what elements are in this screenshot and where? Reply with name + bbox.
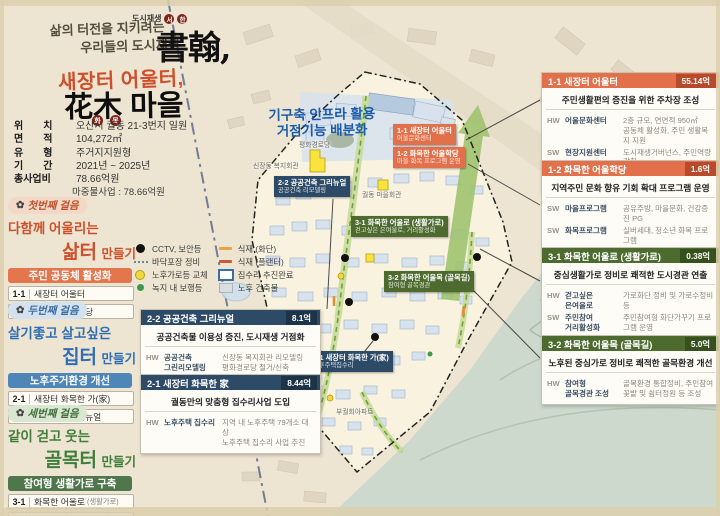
paving-dots-icon bbox=[134, 261, 136, 263]
torn-edge-left bbox=[0, 0, 4, 516]
step2-title-word: 집터 bbox=[62, 347, 97, 368]
map-tag-3-2: 3-2 화목한 어울목 (골목길) 참여형 골목경관 bbox=[384, 271, 474, 292]
legend-repair-done: 집수리 추진완료 bbox=[218, 268, 294, 281]
step3-badge-label: 세번째 걸음 bbox=[27, 406, 78, 421]
flower-icon: ✿ bbox=[16, 305, 24, 316]
step2-badge: ✿ 두번째 걸음 bbox=[8, 302, 87, 319]
detail-box-3-2: 3-2 화목한 어울목 (골목길) 5.0억 노후된 중심가로 정비로 쾌적한 … bbox=[541, 335, 720, 405]
legend-streetlamp: 노후가로등 교체 bbox=[132, 268, 208, 281]
detail-row: SW 화목프로그램 실버세대, 청소년 화목 프로그램 bbox=[547, 226, 714, 246]
info-row-type: 유 형 주거지지원형 bbox=[14, 148, 187, 160]
detail-box-title: 1-2 화목한 어울학당 bbox=[548, 162, 626, 176]
torn-edge-top bbox=[0, 0, 720, 6]
poster-title-line2: 花木 마을 bbox=[64, 82, 184, 126]
map-tag-2-1: 2-1 새장터 화목한 가(家) 노후주택집수리 bbox=[309, 351, 393, 372]
info-row-location: 위 치 오산시 궐동 21-3번지 일원 bbox=[14, 121, 187, 133]
poster: 삶의 터전을 지키려는 우리들의 도시재생 도시재생 서 한 書翰, 새장터 어… bbox=[0, 0, 720, 516]
detail-row: HW 걷고싶은 은여울로 가로화단 정비 및 가로수정비 등 bbox=[547, 291, 714, 311]
detail-box-title: 2-1 새장터 화목한 家 bbox=[147, 376, 229, 390]
step2-title-suffix: 만들기 bbox=[101, 352, 136, 366]
step2-badge-label: 두번째 걸음 bbox=[27, 303, 78, 318]
detail-row: HW 참여형 골목경관 조성 골목환경 통합정비, 주민참여 꽃밭 및 쉼터정원… bbox=[547, 379, 714, 399]
walklight-dot-icon bbox=[137, 284, 144, 291]
detail-box-title: 3-1 화목한 어울로 (생활가로) bbox=[548, 249, 661, 263]
legend-paving: 바닥포장 정비 bbox=[132, 255, 208, 268]
legend-old-building: 노후 건축물 bbox=[218, 281, 294, 294]
step1-title-line1: 다함께 어울리는 bbox=[8, 217, 136, 237]
detail-box-1-2: 1-2 화목한 어울학당 1.6억 지역주민 문화 향유 기회 확대 프로그램 … bbox=[541, 160, 720, 251]
project-info: 위 치 오산시 궐동 21-3번지 일원 면 적 104,272㎡ 유 형 주거… bbox=[14, 121, 187, 199]
landmark-sinjang-welfare-center: 신장동 복지회관 bbox=[253, 160, 299, 170]
planting-planter-line-icon bbox=[219, 260, 232, 263]
landmark-peace-senior-center: 평화경로당 bbox=[299, 139, 330, 149]
step1-badge: ✿ 첫번째 걸음 bbox=[8, 197, 87, 214]
step3-title-suffix: 만들기 bbox=[101, 455, 136, 469]
detail-row: SW 마을프로그램 공유주방, 마을문화, 건강증진 PG bbox=[547, 204, 714, 224]
detail-box-subtitle: 공공건축물 이용성 증진, 도시재생 거점화 bbox=[145, 328, 316, 347]
detail-box-title: 3-2 화목한 어울목 (골목길) bbox=[548, 337, 652, 351]
step2-title-line1: 살기좋고 살고싶은 bbox=[8, 322, 136, 342]
map-tag-1-1: 1-1 새장터 어울터 어울문화센터 bbox=[393, 124, 456, 145]
legend-planting-planter: 식재 (플랜터) bbox=[218, 255, 294, 268]
step1-title: 다함께 어울리는 삶터 만들기 bbox=[8, 217, 136, 264]
budget-badge: 8.1억 bbox=[286, 311, 317, 325]
torn-edge-right bbox=[716, 0, 720, 516]
torn-edge-bottom bbox=[0, 507, 720, 516]
step3-badge: ✿ 세번째 걸음 bbox=[8, 405, 87, 422]
step3-title-word: 골목터 bbox=[45, 450, 97, 471]
detail-box-3-1: 3-1 화목한 어울로 (생활가로) 0.38억 중심생활가로 정비로 쾌적한 … bbox=[541, 247, 720, 338]
detail-row: HW 공공건축 그린리모델링 신장동 복지회관 리모델링 평화경로당 철거/신축 bbox=[146, 353, 315, 373]
old-building-rect-icon bbox=[219, 283, 233, 293]
detail-box-subtitle: 지역주민 문화 향유 기회 확대 프로그램 운영 bbox=[546, 179, 715, 198]
landmark-gwoldong-village-hall: 궐동 마을회관 bbox=[362, 189, 401, 199]
legend-cctv: CCTV, 보안등 bbox=[132, 242, 208, 255]
info-row-period: 기 간 2021년 ~ 2025년 bbox=[14, 161, 187, 173]
detail-box-title: 1-1 새장터 어울터 bbox=[548, 74, 618, 88]
map-tag-3-1: 3-1 화목한 어울로 (생활가로) 걷고싶은 은여울로, 거리활성화 bbox=[351, 216, 448, 237]
budget-badge: 8.44억 bbox=[281, 376, 317, 390]
list-item-1-1: 1-1 새장터 어울터 bbox=[8, 286, 134, 301]
step3-title-line1: 같이 걷고 웃는 bbox=[8, 425, 136, 445]
planting-flowerbed-line-icon bbox=[219, 247, 232, 250]
map-legend: CCTV, 보안등 바닥포장 정비 노후가로등 교체 녹지 내 보행등 식재 (… bbox=[132, 242, 294, 294]
detail-row: HW 노후주택 집수리 지역 내 노후주택 79개소 대상 노후주택 집수리 사… bbox=[146, 418, 315, 448]
step2-title: 살기좋고 살고싶은 집터 만들기 bbox=[8, 322, 136, 369]
detail-box-subtitle: 궐동만의 맞춤형 집수리사업 도입 bbox=[145, 393, 316, 412]
flower-icon: ✿ bbox=[16, 200, 24, 211]
flower-icon: ✿ bbox=[16, 408, 24, 419]
step1-title-word: 삶터 bbox=[62, 242, 97, 263]
detail-box-subtitle: 노후된 중심가로 정비로 쾌적한 골목환경 개선 bbox=[546, 354, 715, 373]
step2-banner: 노후주거환경 개선 bbox=[8, 373, 132, 388]
detail-box-title: 2-2 공공건축 그리뉴얼 bbox=[147, 311, 234, 325]
streetlamp-dot-icon bbox=[135, 270, 145, 280]
step-section-3: ✿ 세번째 걸음 같이 걷고 웃는 골목터 만들기 참여형 생활가로 구축 3-… bbox=[8, 403, 136, 516]
step3-banner: 참여형 생활가로 구축 bbox=[8, 476, 132, 491]
detail-box-subtitle: 중심생활가로 정비로 쾌적한 도시경관 연출 bbox=[546, 266, 715, 285]
step1-title-suffix: 만들기 bbox=[101, 247, 136, 261]
map-tag-2-2: 2-2 공공건축 그리뉴얼 공공건축 리모델링 bbox=[274, 176, 350, 197]
detail-box-2-1: 2-1 새장터 화목한 家 8.44억 궐동만의 맞춤형 집수리사업 도입 HW… bbox=[140, 374, 321, 454]
budget-badge: 55.14억 bbox=[676, 74, 716, 88]
detail-row: SW 주민참여 거리활성화 주민참여형 화단가꾸기 프로그램 운영 bbox=[547, 313, 714, 333]
detail-row: HW 어울문화센터 2층 규모, 연면적 950㎡ 공동체 활성화, 주민 생활… bbox=[547, 116, 714, 146]
cctv-icon bbox=[136, 244, 145, 253]
legend-planting-flowerbed: 식재 (화단) bbox=[218, 242, 294, 255]
map-tag-1-2: 1-2 화목한 어울학당 마을·화목 프로그램 운영 bbox=[393, 147, 465, 168]
infra-note: 기구축 인프라 활용 거점기능 배분화 bbox=[247, 106, 398, 142]
step3-title: 같이 걷고 웃는 골목터 만들기 bbox=[8, 425, 136, 472]
info-row-budget: 총사업비 78.66억원 bbox=[14, 174, 187, 186]
detail-box-subtitle: 주민생활편의 증진을 위한 주차장 조성 bbox=[546, 91, 715, 110]
info-row-area: 면 적 104,272㎡ bbox=[14, 134, 187, 146]
step1-badge-label: 첫번째 걸음 bbox=[27, 198, 78, 213]
step1-banner: 주민 공동체 활성화 bbox=[8, 268, 132, 283]
detail-box-2-2: 2-2 공공건축 그리뉴얼 8.1억 공공건축물 이용성 증진, 도시재생 거점… bbox=[140, 309, 321, 379]
legend-walklight: 녹지 내 보행등 bbox=[132, 281, 208, 294]
budget-badge: 0.38억 bbox=[680, 249, 716, 263]
budget-badge: 5.0억 bbox=[685, 337, 716, 351]
landmark-apartment: 부궐회아파트 bbox=[336, 406, 374, 416]
repair-done-rect-icon bbox=[218, 269, 234, 281]
budget-badge: 1.6억 bbox=[685, 162, 716, 176]
